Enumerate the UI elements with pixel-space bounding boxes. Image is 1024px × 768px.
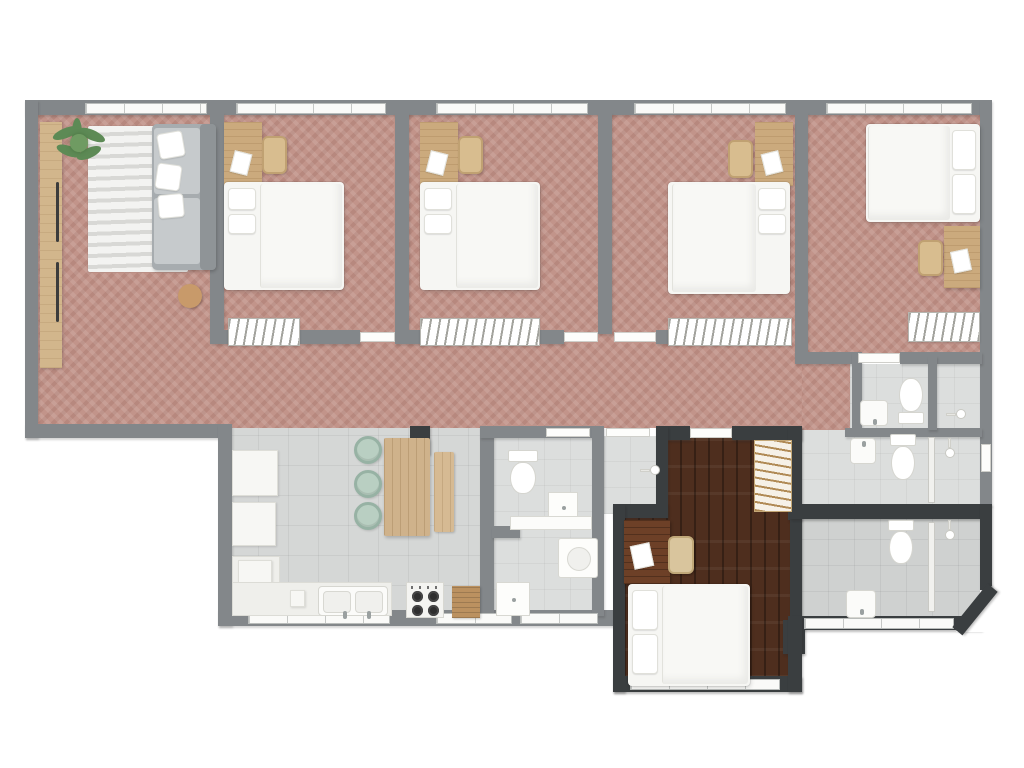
shower-head-disc xyxy=(956,409,966,419)
shower-head-disc xyxy=(945,530,955,540)
wall-bed5-jut-right xyxy=(788,616,802,692)
wall-topright-shower-divider xyxy=(928,356,937,430)
sofa-pillow xyxy=(157,193,185,219)
sink-bottomright-bath xyxy=(846,590,876,618)
sofa-pillow xyxy=(154,162,182,191)
paper-sheet xyxy=(761,150,784,176)
faucet xyxy=(873,419,877,425)
wall-bed4-bottom-right xyxy=(900,352,982,364)
shower-head xyxy=(944,438,956,458)
laundry-sink xyxy=(496,582,530,616)
bed-bedroom4 xyxy=(866,124,980,222)
sink-midright-bath xyxy=(850,438,876,464)
shower-stem xyxy=(948,520,951,530)
radiator-bedroom5 xyxy=(754,440,792,512)
drain xyxy=(512,598,516,602)
stove-knobs xyxy=(411,586,441,589)
faucet xyxy=(343,611,347,619)
door-bathroom-mid xyxy=(546,428,590,437)
toilet-bowl xyxy=(510,462,536,494)
sideboard xyxy=(40,122,62,368)
cutting-board xyxy=(290,590,305,607)
radiator-bedroom4 xyxy=(908,312,980,342)
toilet-midright xyxy=(888,434,918,482)
kitchen-sink xyxy=(318,586,388,616)
door-bedroom2 xyxy=(564,332,598,342)
toilet-bowl xyxy=(891,446,915,480)
washing-machine xyxy=(558,538,598,578)
drain xyxy=(562,506,566,510)
desk-bedroom1 xyxy=(224,122,262,186)
window-laundry xyxy=(520,613,598,624)
wall-bedroom1-2 xyxy=(395,113,409,334)
blanket xyxy=(672,184,756,292)
window-bedroom4 xyxy=(826,103,972,114)
wall-bathroom-br-top xyxy=(790,504,982,519)
blanket xyxy=(662,586,748,684)
pillow xyxy=(228,188,256,210)
pillow xyxy=(758,188,786,210)
sink-topright-bath xyxy=(860,400,888,426)
dining-chair xyxy=(354,470,382,498)
wood-cabinet xyxy=(452,586,480,618)
shower-head-disc xyxy=(945,448,955,458)
pillow xyxy=(758,214,786,234)
wall-left xyxy=(25,100,38,438)
toilet-tank xyxy=(508,450,538,462)
paper-sheet xyxy=(230,150,253,176)
toilet-tank xyxy=(888,520,914,531)
wall-bed2-stub-right xyxy=(540,330,564,344)
fridge xyxy=(232,450,278,496)
faucet xyxy=(860,609,864,615)
wall-bedroom2-3 xyxy=(598,113,612,334)
divider-bottomright-bath xyxy=(928,522,935,612)
window-bedroom3 xyxy=(634,103,786,114)
wall-rightblock-left-lower xyxy=(790,518,802,618)
faucet xyxy=(367,611,371,619)
chair-bedroom3 xyxy=(728,140,753,178)
burner xyxy=(428,605,439,616)
wall-bed3-stub xyxy=(656,330,668,344)
divider-midright-bath xyxy=(928,437,935,503)
wall-bedroom3-4 xyxy=(795,113,808,360)
toilet-topright xyxy=(896,378,926,426)
sofa xyxy=(152,124,216,270)
wall-bath-shower xyxy=(592,426,604,616)
paper-sheet xyxy=(950,248,972,273)
washer-door xyxy=(567,547,591,571)
shower-stem xyxy=(948,438,951,448)
chair-bedroom2 xyxy=(458,136,483,174)
stove xyxy=(406,582,444,618)
wall-living-bottom xyxy=(25,424,225,438)
floor-plan xyxy=(0,0,1024,768)
radiator-bedroom3 xyxy=(668,318,792,346)
pillow xyxy=(632,590,658,630)
faucet xyxy=(862,441,866,447)
door-bedroom3 xyxy=(614,332,656,342)
bed-bedroom3 xyxy=(668,182,790,294)
pillow xyxy=(424,188,452,210)
paper-sheet xyxy=(630,542,655,570)
pillow xyxy=(632,634,658,674)
window-bathroom-br xyxy=(804,618,954,629)
chair-bedroom5 xyxy=(668,536,694,574)
radiator-bedroom2 xyxy=(420,318,540,346)
pillow xyxy=(228,214,256,234)
dining-bench xyxy=(434,452,454,532)
door-entry-right xyxy=(981,444,991,472)
shower-stem xyxy=(946,413,956,416)
coffee-table xyxy=(178,284,202,308)
toilet-bowl xyxy=(889,531,913,564)
wall-bed4-bottom-left xyxy=(795,352,858,364)
window-bedroom1 xyxy=(236,103,386,114)
window-bedroom2 xyxy=(436,103,588,114)
chair-bedroom1 xyxy=(262,136,287,174)
sink-bowl xyxy=(355,591,383,613)
dining-table xyxy=(384,438,430,536)
bed-bedroom1 xyxy=(224,182,344,290)
shower-head-disc xyxy=(650,465,660,475)
burner xyxy=(412,591,423,602)
sofa-pillow xyxy=(156,130,186,160)
wall-kitchen-bath xyxy=(480,426,494,616)
blanket xyxy=(456,184,538,288)
sideboard-handle xyxy=(56,182,59,242)
toilet-mid-bath xyxy=(506,450,540,496)
sideboard-handle xyxy=(56,262,59,322)
wall-bed2-stub-left xyxy=(395,330,420,344)
burner xyxy=(412,605,423,616)
chair-bedroom4 xyxy=(918,240,943,276)
door-bedroom4 xyxy=(858,353,900,363)
appliance xyxy=(232,502,276,546)
wall-kitchen-left xyxy=(218,424,232,626)
door-bedroom5 xyxy=(690,428,732,438)
desk-bedroom4 xyxy=(944,226,980,288)
bed-bedroom5 xyxy=(628,584,750,686)
blanket xyxy=(260,184,342,288)
paper-sheet xyxy=(426,150,449,176)
dining-chair xyxy=(354,502,382,530)
toilet-tank xyxy=(898,412,924,424)
toilet-tank xyxy=(890,434,916,446)
shower-head xyxy=(946,408,966,420)
shower-head xyxy=(640,464,660,476)
wall-bed1-stub-right xyxy=(300,330,360,344)
desk-bedroom3 xyxy=(755,122,793,186)
wall-bed1-stub-left xyxy=(210,330,228,344)
pillow xyxy=(952,174,976,214)
bathroom-vanity xyxy=(510,516,592,530)
bed-bedroom2 xyxy=(420,182,540,290)
sofa-back xyxy=(200,124,216,270)
door-bedroom1 xyxy=(360,332,395,342)
pillow xyxy=(952,130,976,170)
shower-stem xyxy=(640,469,650,472)
toilet-bottomright xyxy=(886,520,916,566)
door-shower-room xyxy=(606,428,650,437)
blanket xyxy=(868,126,950,220)
shower-head xyxy=(944,520,956,540)
sink-bowl xyxy=(323,591,351,613)
dining-chair xyxy=(354,436,382,464)
desk-bedroom5 xyxy=(624,520,670,584)
burner xyxy=(428,591,439,602)
wall-right-lower xyxy=(980,504,992,590)
pillow xyxy=(424,214,452,234)
desk-bedroom2 xyxy=(420,122,458,186)
radiator-bedroom1 xyxy=(228,318,300,346)
plant-core xyxy=(70,134,88,152)
window-living xyxy=(85,103,207,114)
toilet-bowl xyxy=(899,378,923,412)
